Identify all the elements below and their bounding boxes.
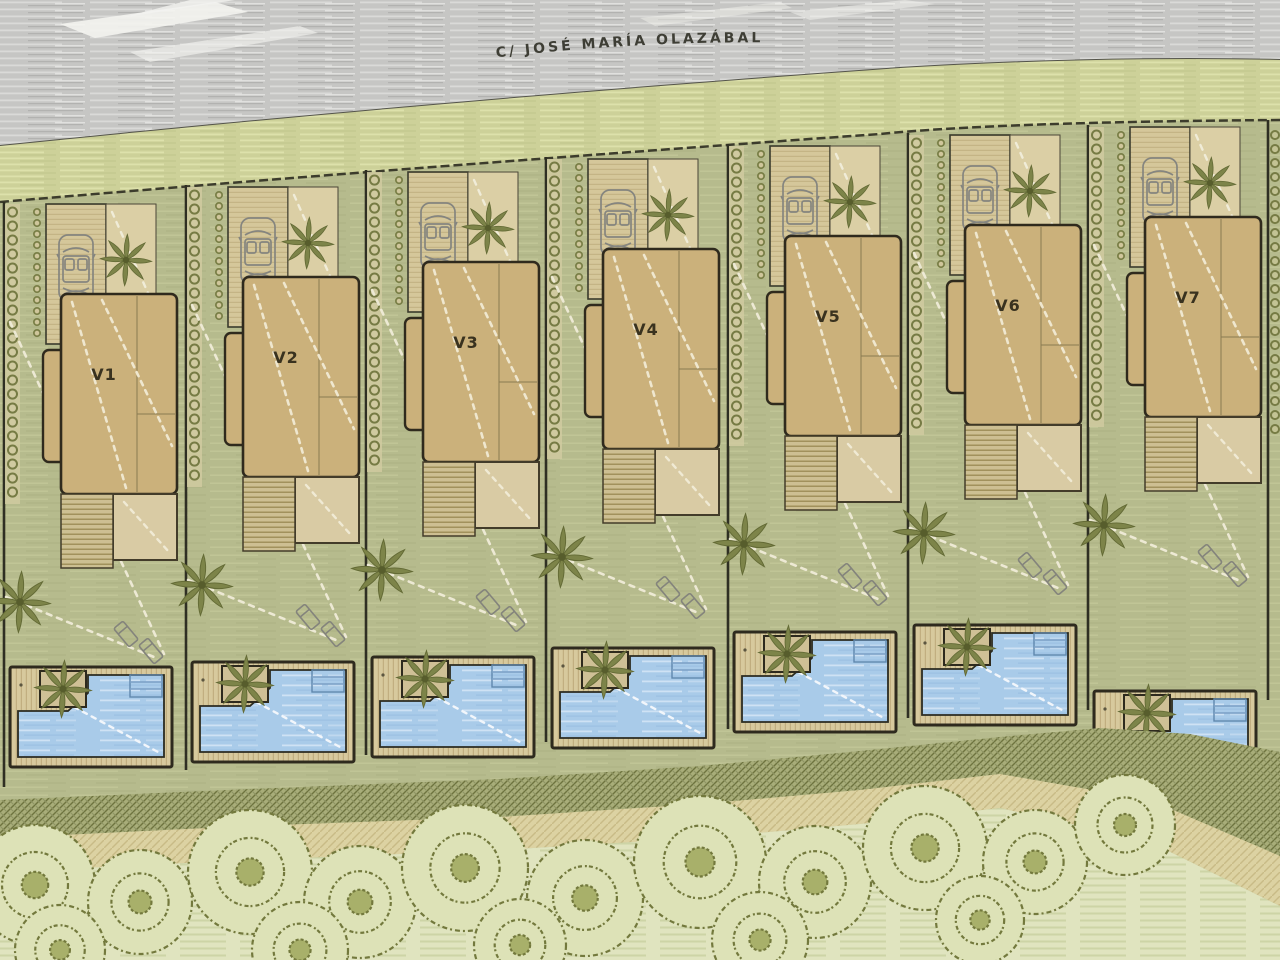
deck-drain xyxy=(381,673,384,676)
site-plan: C/ JOSÉ MARÍA OLAZÁBAL xyxy=(0,0,1280,960)
villa-label: V7 xyxy=(1175,288,1201,307)
villa-label: V1 xyxy=(91,365,117,384)
villa-house: V7 xyxy=(1127,217,1261,491)
pool-group xyxy=(10,661,172,768)
villa-plot-v6: V6 xyxy=(894,133,1081,725)
tree-bush-icon xyxy=(936,876,1024,960)
house-patio-deck xyxy=(1145,417,1197,491)
villa-label: V3 xyxy=(453,333,479,352)
villa-house: V6 xyxy=(947,225,1081,499)
house-patio-deck xyxy=(61,494,113,568)
deck-drain xyxy=(1103,707,1106,710)
villa-plot-v4: V4 xyxy=(532,157,719,748)
villa-house: V5 xyxy=(767,236,901,510)
house-patio-deck xyxy=(423,462,475,536)
deck-drain xyxy=(561,664,564,667)
tree-bush-icon xyxy=(1075,775,1175,875)
house-patio-deck xyxy=(965,425,1017,499)
villa-house: V3 xyxy=(405,262,539,536)
villa-plot-v2: V2 xyxy=(172,185,359,770)
house-patio-deck xyxy=(603,449,655,523)
tree-bush-icon xyxy=(88,850,192,954)
deck-drain xyxy=(19,683,22,686)
villa-house: V4 xyxy=(585,249,719,523)
house-patio-deck xyxy=(785,436,837,510)
pool-group xyxy=(914,619,1076,726)
villa-label: V2 xyxy=(273,348,299,367)
villa-plot-v5: V5 xyxy=(714,144,901,732)
villa-label: V6 xyxy=(995,296,1021,315)
pool-group xyxy=(734,626,896,733)
pool-group xyxy=(372,651,534,758)
villa-plot-v3: V3 xyxy=(352,170,539,757)
villa-house: V1 xyxy=(43,294,177,568)
pool-group xyxy=(192,656,354,763)
house-patio-deck xyxy=(243,477,295,551)
pool-group xyxy=(552,642,714,749)
villa-label: V5 xyxy=(815,307,841,326)
villa-label: V4 xyxy=(633,320,659,339)
deck-drain xyxy=(201,678,204,681)
deck-drain xyxy=(923,641,926,644)
villa-house: V2 xyxy=(225,277,359,551)
deck-drain xyxy=(743,648,746,651)
